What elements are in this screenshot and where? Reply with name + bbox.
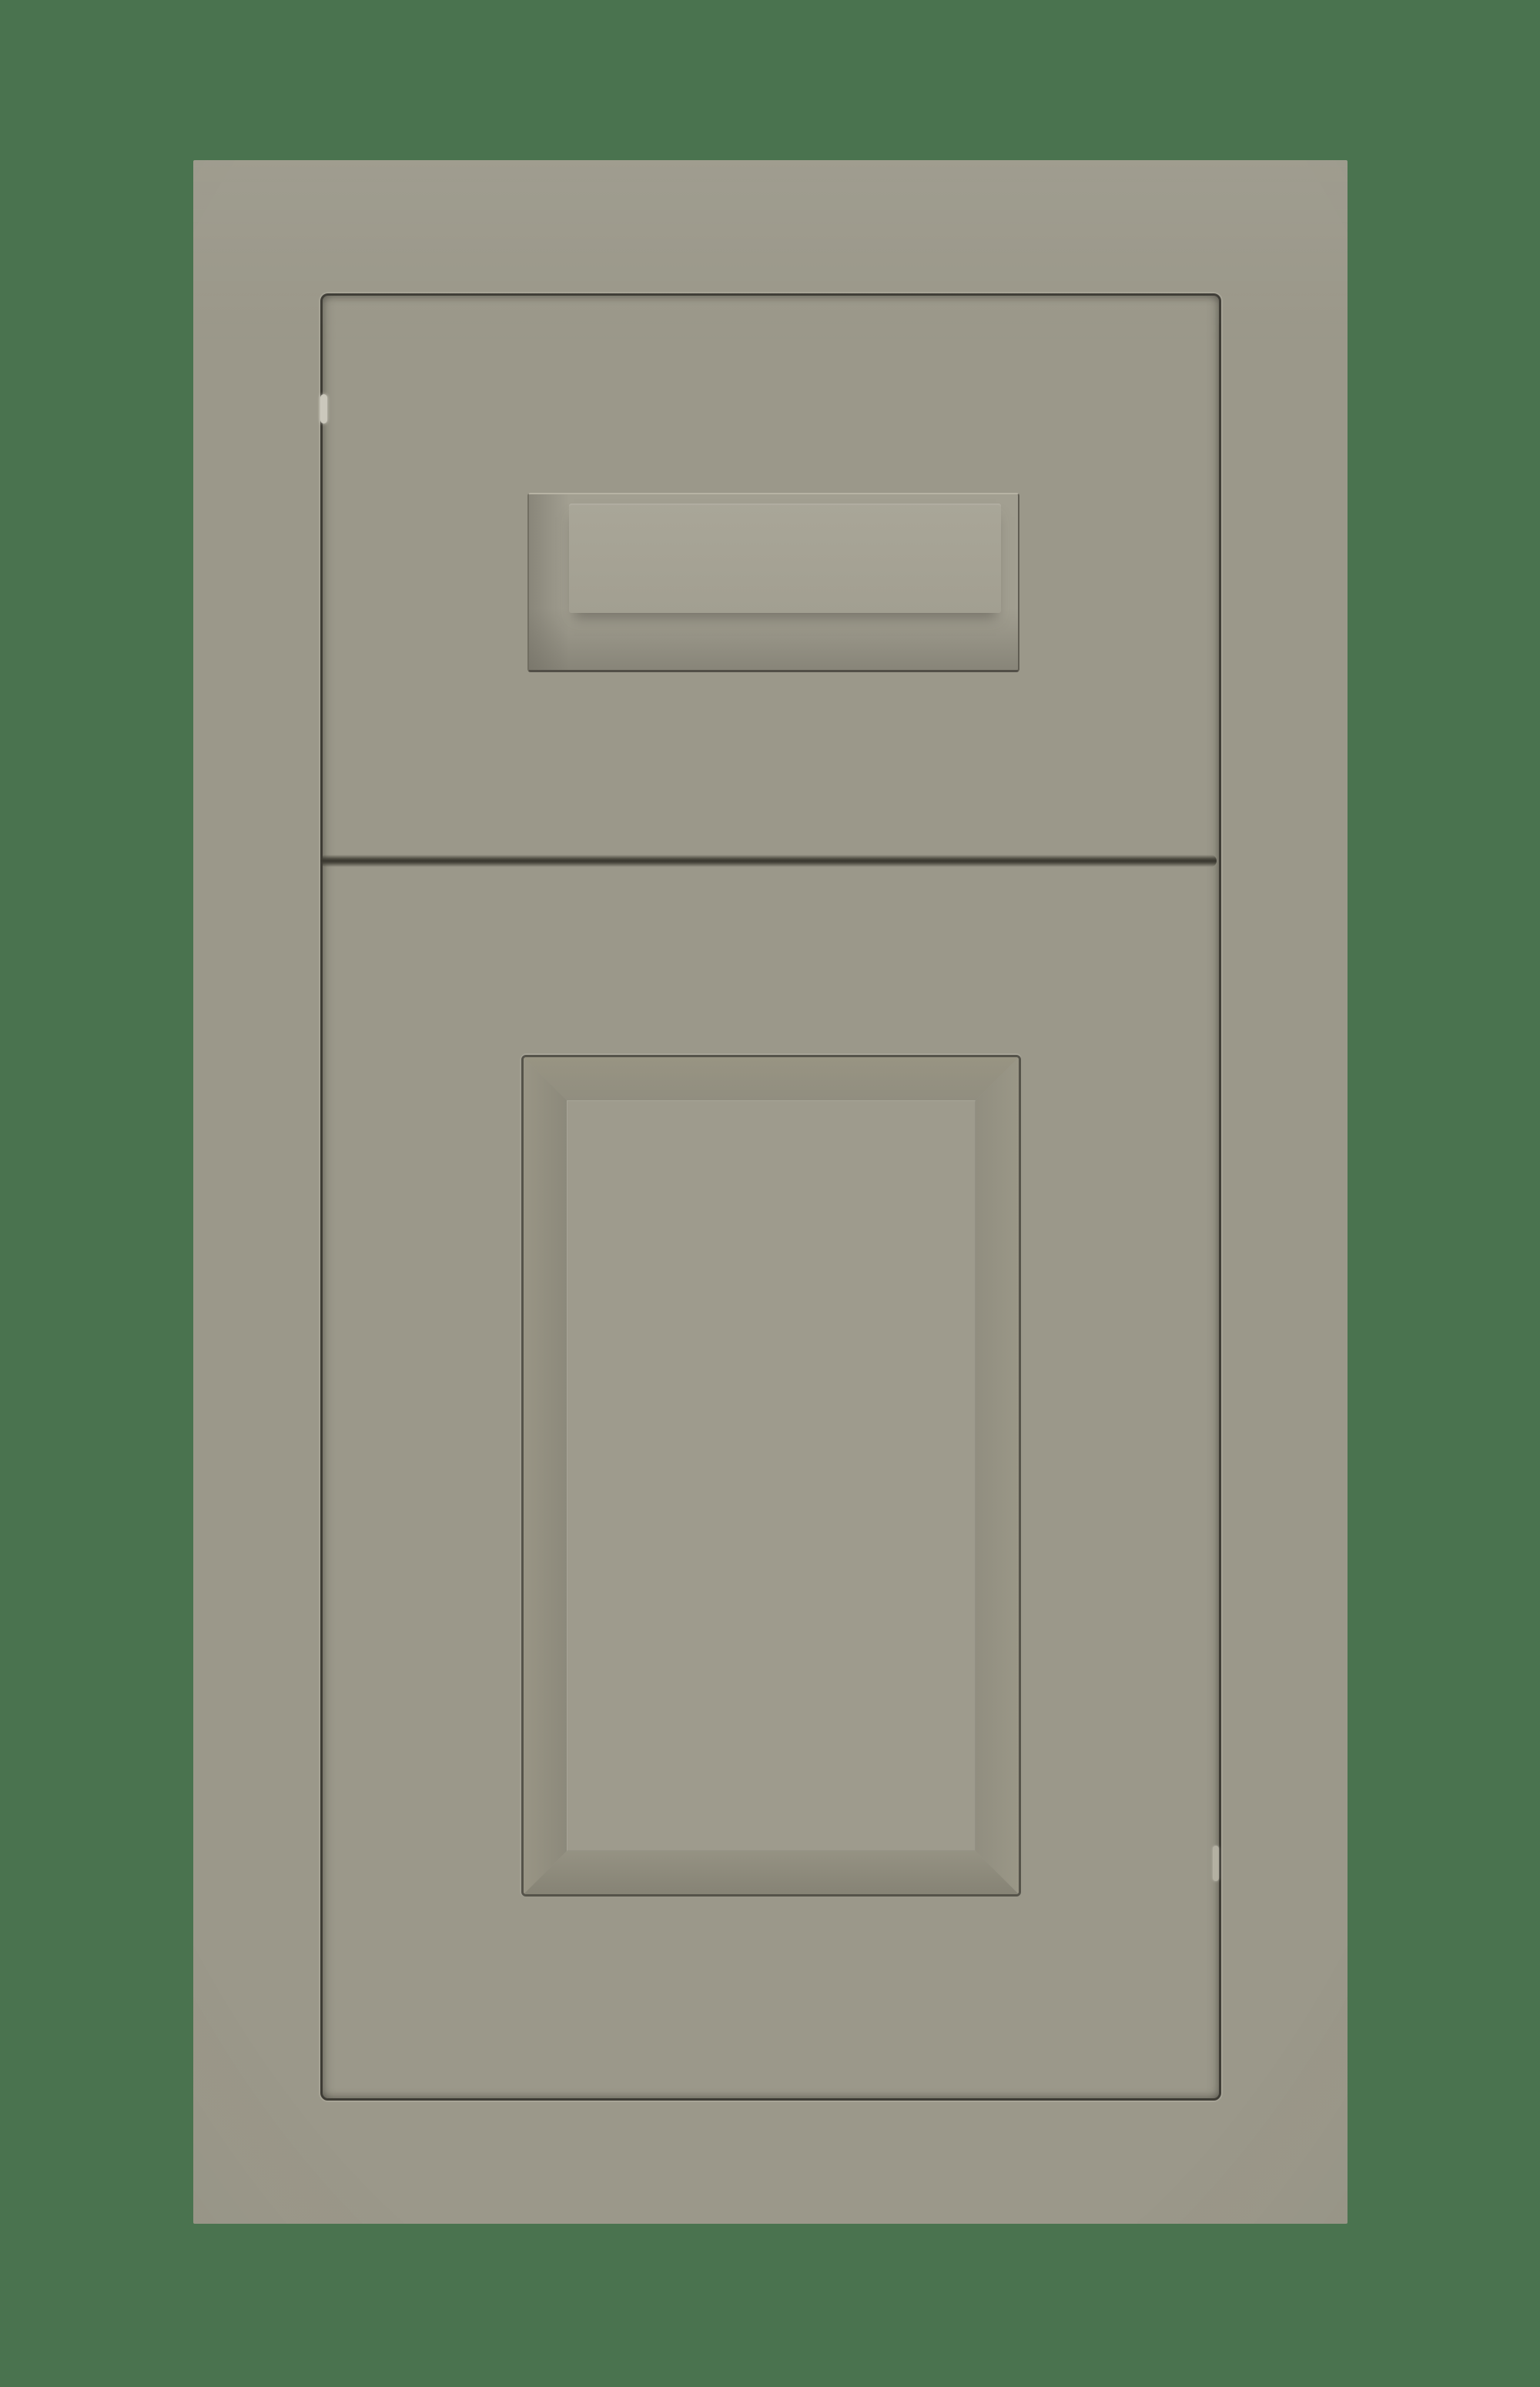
door-panel-groove: [521, 1055, 1021, 1897]
recess-bottom-shadow: [529, 608, 1018, 670]
drawer-pull: [569, 504, 1001, 613]
door-center-panel: [567, 1100, 976, 1851]
door-bevel-right: [976, 1057, 1019, 1894]
door-bevel-left: [524, 1057, 567, 1894]
background: [0, 0, 1540, 2387]
door-bevel-bottom: [524, 1851, 1019, 1894]
drawer-door-gap: [320, 855, 1217, 867]
cabinet-sample: [193, 160, 1347, 2224]
door-bevel-top: [524, 1057, 1019, 1100]
drawer-pull-recess: [527, 493, 1019, 672]
